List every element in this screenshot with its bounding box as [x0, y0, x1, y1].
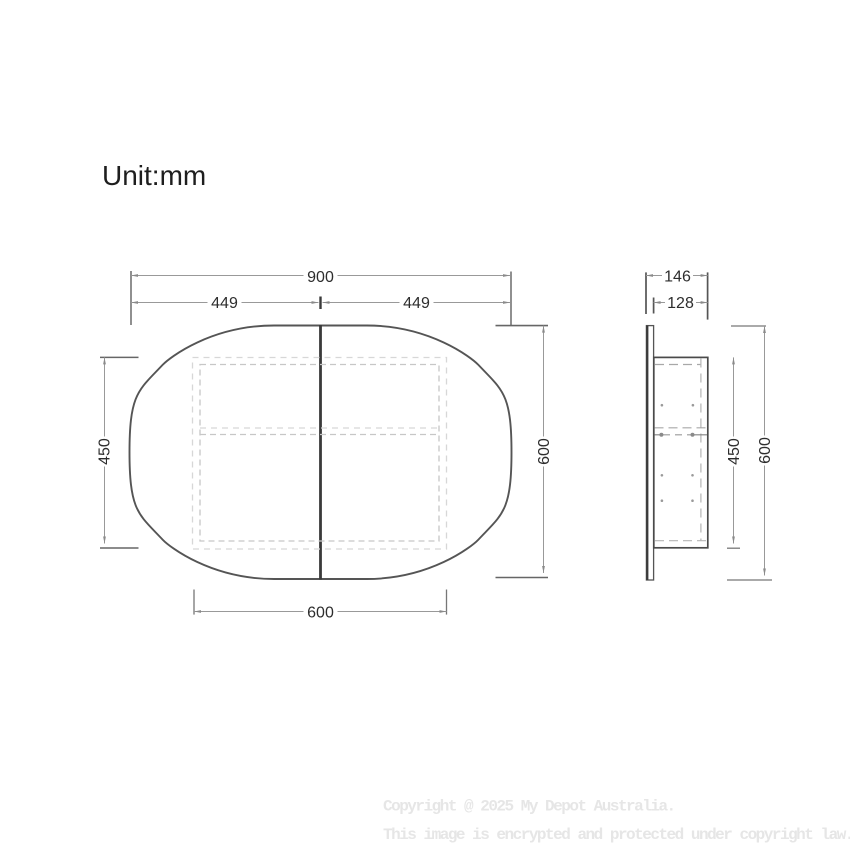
svg-text:600: 600	[307, 604, 334, 621]
svg-text:128: 128	[667, 295, 694, 312]
svg-text:Copyright @ 2025 My Depot Aust: Copyright @ 2025 My Depot Australia.	[383, 798, 675, 816]
svg-text:450: 450	[97, 438, 114, 465]
svg-text:This image is encrypted and pr: This image is encrypted and protected un…	[383, 826, 850, 844]
svg-text:449: 449	[403, 295, 430, 312]
svg-text:600: 600	[757, 437, 774, 464]
svg-text:450: 450	[726, 438, 743, 465]
svg-text:146: 146	[664, 268, 691, 285]
svg-text:449: 449	[211, 295, 238, 312]
svg-text:900: 900	[307, 269, 334, 286]
svg-text:Unit:mm: Unit:mm	[102, 160, 206, 191]
svg-text:600: 600	[536, 438, 553, 465]
